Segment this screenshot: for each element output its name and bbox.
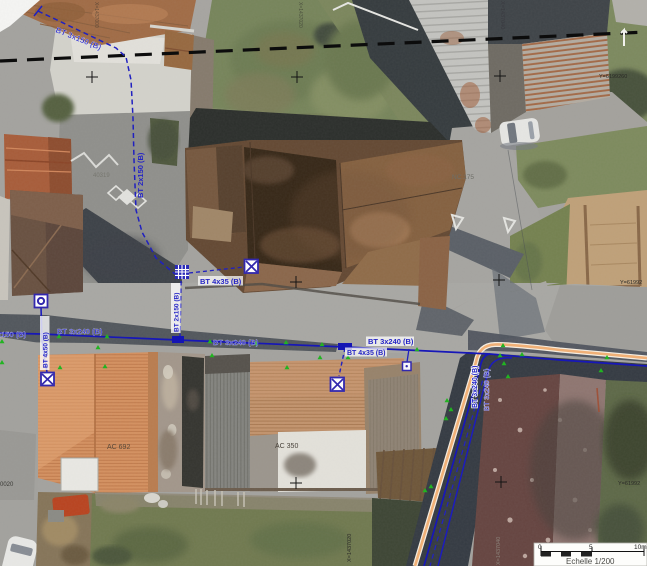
svg-text:AC 692: AC 692 [107,444,130,451]
svg-text:Y=61992: Y=61992 [620,280,642,286]
svg-text:5: 5 [589,544,593,551]
svg-text:X=1437020: X=1437020 [297,2,303,28]
svg-text:X=1437020: X=1437020 [347,534,353,562]
svg-text:Y=61992: Y=61992 [618,481,640,487]
svg-text:'3x150 (B): '3x150 (B) [0,330,27,339]
svg-text:Echelle 1/200: Echelle 1/200 [566,557,615,566]
svg-text:BT 3x240 (B): BT 3x240 (B) [484,369,491,411]
svg-text:X=1437040: X=1437040 [499,1,505,29]
svg-text:0: 0 [538,544,542,551]
svg-text:BT 3x240 (B): BT 3x240 (B) [472,366,479,408]
svg-text:10m: 10m [634,544,647,551]
svg-text:X=1437000: X=1437000 [93,2,99,28]
svg-text:BT 3x240 (B): BT 3x240 (B) [213,338,259,347]
svg-text:AC 350: AC 350 [275,443,298,450]
svg-text:BT 3x240 (B): BT 3x240 (B) [368,337,414,346]
svg-text:40319: 40319 [93,173,110,179]
svg-text:BT 2x150 (B): BT 2x150 (B) [136,152,145,198]
svg-text:BT 2x150 (B): BT 2x150 (B) [174,293,181,332]
svg-text:0020: 0020 [0,482,14,488]
svg-text:BT 4x50 (B): BT 4x50 (B) [43,332,50,368]
svg-text:X=1437040: X=1437040 [496,537,502,565]
svg-text:BT 3x240 (B): BT 3x240 (B) [57,327,103,336]
svg-text:BT 4x35 (B): BT 4x35 (B) [347,350,386,357]
svg-text:Y=6199260: Y=6199260 [599,74,627,80]
svg-text:NC 175: NC 175 [452,174,474,181]
svg-text:BT 4x35 (B): BT 4x35 (B) [200,277,242,286]
